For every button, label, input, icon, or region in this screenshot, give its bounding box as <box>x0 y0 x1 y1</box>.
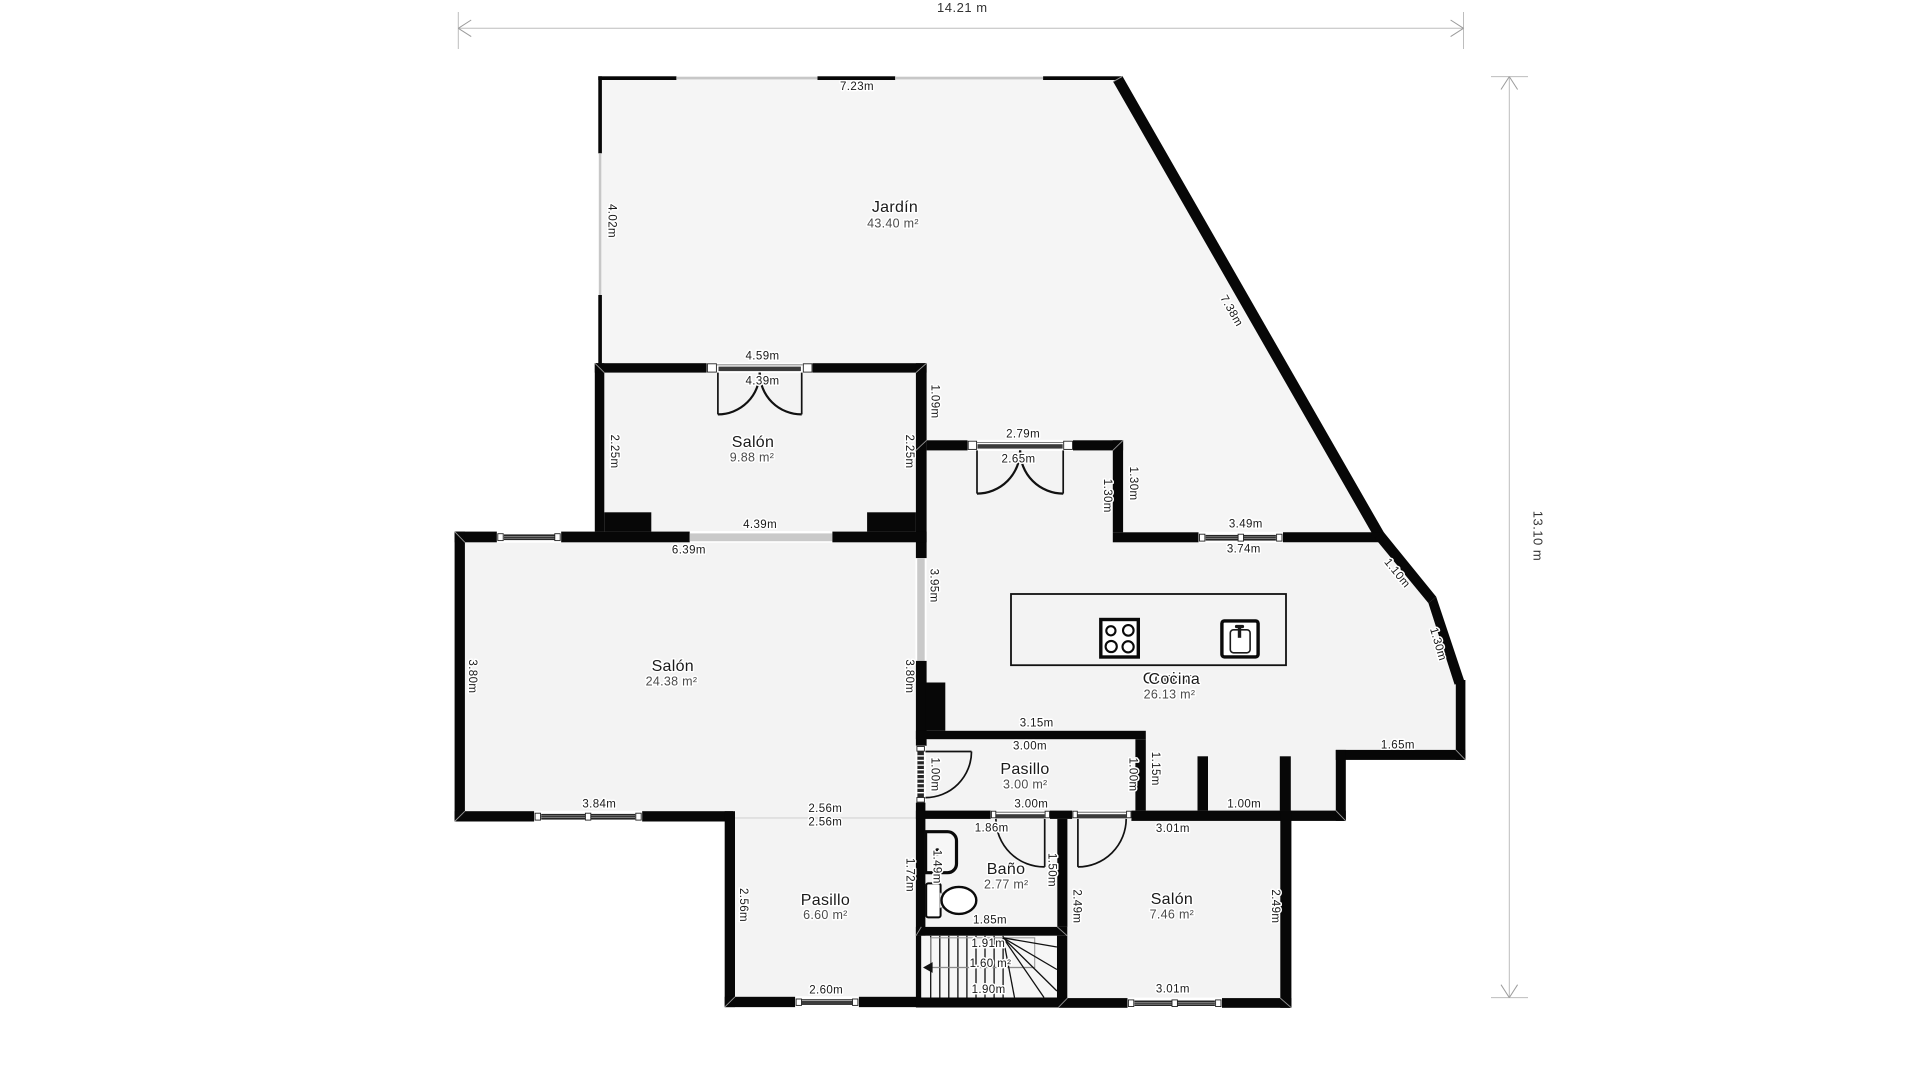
svg-text:3.00m: 3.00m <box>1014 798 1048 810</box>
svg-text:9.88 m²: 9.88 m² <box>730 451 774 465</box>
svg-text:2.56m: 2.56m <box>808 816 842 828</box>
svg-text:3.49m: 3.49m <box>1229 519 1263 531</box>
svg-text:3.00 m²: 3.00 m² <box>1003 778 1047 792</box>
svg-text:1.49m: 1.49m <box>930 850 942 884</box>
svg-text:1.60 m²: 1.60 m² <box>970 958 1012 970</box>
svg-text:2.79m: 2.79m <box>1006 429 1040 441</box>
svg-text:2.49m: 2.49m <box>1269 889 1281 923</box>
svg-text:1.90m: 1.90m <box>972 984 1006 996</box>
svg-text:26.13 m²: 26.13 m² <box>1144 688 1196 702</box>
svg-text:3.74m: 3.74m <box>1227 544 1261 556</box>
svg-text:3.01m: 3.01m <box>1156 984 1190 996</box>
svg-text:4.02m: 4.02m <box>606 204 618 238</box>
svg-text:3.80m: 3.80m <box>903 659 915 693</box>
svg-text:4.39m: 4.39m <box>746 376 780 388</box>
svg-text:3.01m: 3.01m <box>1156 823 1190 835</box>
svg-text:1.30m: 1.30m <box>1127 467 1139 501</box>
svg-text:43.40 m²: 43.40 m² <box>867 217 919 231</box>
svg-text:Pasillo: Pasillo <box>1000 761 1049 778</box>
svg-text:2.60m: 2.60m <box>809 984 843 996</box>
svg-text:1.00m: 1.00m <box>1126 758 1138 792</box>
svg-text:3.80m: 3.80m <box>466 659 478 693</box>
svg-text:6.39m: 6.39m <box>672 545 706 557</box>
svg-text:Salón: Salón <box>1151 891 1193 908</box>
svg-text:3.84m: 3.84m <box>582 798 616 810</box>
svg-text:7.46 m²: 7.46 m² <box>1150 908 1194 922</box>
svg-text:1.15m: 1.15m <box>1149 752 1161 786</box>
svg-text:4.39m: 4.39m <box>743 519 777 531</box>
svg-text:Jardín: Jardín <box>872 199 918 216</box>
svg-text:1.00m: 1.00m <box>1227 798 1261 810</box>
svg-text:1.65m: 1.65m <box>1381 739 1415 751</box>
svg-text:1.86m: 1.86m <box>975 823 1009 835</box>
svg-text:1.50m: 1.50m <box>1045 853 1057 887</box>
svg-text:1.85m: 1.85m <box>973 915 1007 927</box>
svg-text:14.21 m: 14.21 m <box>937 0 987 15</box>
svg-text:Cocina: Cocina <box>1148 671 1200 688</box>
svg-text:7.23m: 7.23m <box>840 81 874 93</box>
svg-text:24.38 m²: 24.38 m² <box>646 675 698 689</box>
svg-text:6.60 m²: 6.60 m² <box>803 908 847 922</box>
svg-text:13.10 m: 13.10 m <box>1531 511 1546 561</box>
svg-text:2.25m: 2.25m <box>903 435 915 469</box>
svg-text:2.65m: 2.65m <box>1002 454 1036 466</box>
svg-text:1.00m: 1.00m <box>929 758 941 792</box>
svg-text:2.77 m²: 2.77 m² <box>984 878 1028 892</box>
svg-text:3.00m: 3.00m <box>1013 740 1047 752</box>
svg-text:1.09m: 1.09m <box>929 385 941 419</box>
svg-text:2.49m: 2.49m <box>1070 889 1082 923</box>
svg-text:1.91m: 1.91m <box>971 938 1005 950</box>
svg-text:2.56m: 2.56m <box>737 888 749 922</box>
svg-text:Salón: Salón <box>652 658 694 675</box>
svg-text:Pasillo: Pasillo <box>801 892 850 909</box>
svg-text:4.59m: 4.59m <box>746 351 780 363</box>
svg-text:3.95m: 3.95m <box>927 569 939 603</box>
svg-text:1.72m: 1.72m <box>904 858 916 892</box>
svg-text:Salón: Salón <box>732 434 774 451</box>
svg-text:1.30m: 1.30m <box>1101 479 1113 513</box>
svg-text:2.25m: 2.25m <box>608 435 620 469</box>
svg-text:3.15m: 3.15m <box>1020 718 1054 730</box>
svg-text:2.56m: 2.56m <box>808 803 842 815</box>
svg-text:Baño: Baño <box>987 861 1026 878</box>
